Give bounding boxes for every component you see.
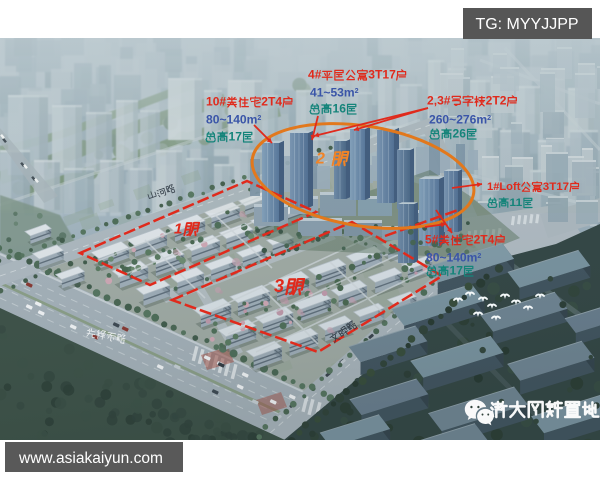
svg-text:2T2: 2T2	[486, 96, 507, 108]
svg-text:2: 2	[257, 114, 261, 122]
svg-text:2: 2	[487, 114, 491, 122]
svg-text:11: 11	[509, 197, 522, 209]
svg-text:2: 2	[477, 252, 481, 260]
svg-text:3T17: 3T17	[368, 70, 396, 82]
svg-text:2T4: 2T4	[261, 97, 282, 109]
svg-text:80~140m: 80~140m	[426, 253, 477, 265]
svg-text:www.asiakaiyun.com: www.asiakaiyun.com	[18, 450, 163, 467]
svg-text:5#: 5#	[425, 235, 439, 247]
svg-text:17: 17	[229, 132, 242, 144]
svg-text:2: 2	[355, 87, 359, 95]
svg-text:10#: 10#	[206, 97, 227, 109]
svg-text:41~53m: 41~53m	[310, 88, 355, 100]
svg-text:16: 16	[333, 104, 346, 116]
svg-text:1: 1	[174, 221, 182, 238]
svg-text:80~140m: 80~140m	[206, 115, 257, 127]
svg-text:2,3#: 2,3#	[427, 96, 451, 108]
svg-text:17: 17	[450, 266, 463, 278]
svg-text:4#: 4#	[308, 70, 322, 82]
svg-text:2: 2	[315, 150, 325, 167]
svg-text:26: 26	[453, 129, 466, 141]
svg-text:1#Loft: 1#Loft	[487, 181, 521, 193]
svg-text:2T4: 2T4	[474, 235, 495, 247]
svg-text:260~276m: 260~276m	[429, 115, 487, 127]
svg-text:3: 3	[274, 276, 284, 296]
svg-text:3T17: 3T17	[543, 181, 569, 193]
svg-text:TG: MYYJJPP: TG: MYYJJPP	[475, 16, 578, 33]
